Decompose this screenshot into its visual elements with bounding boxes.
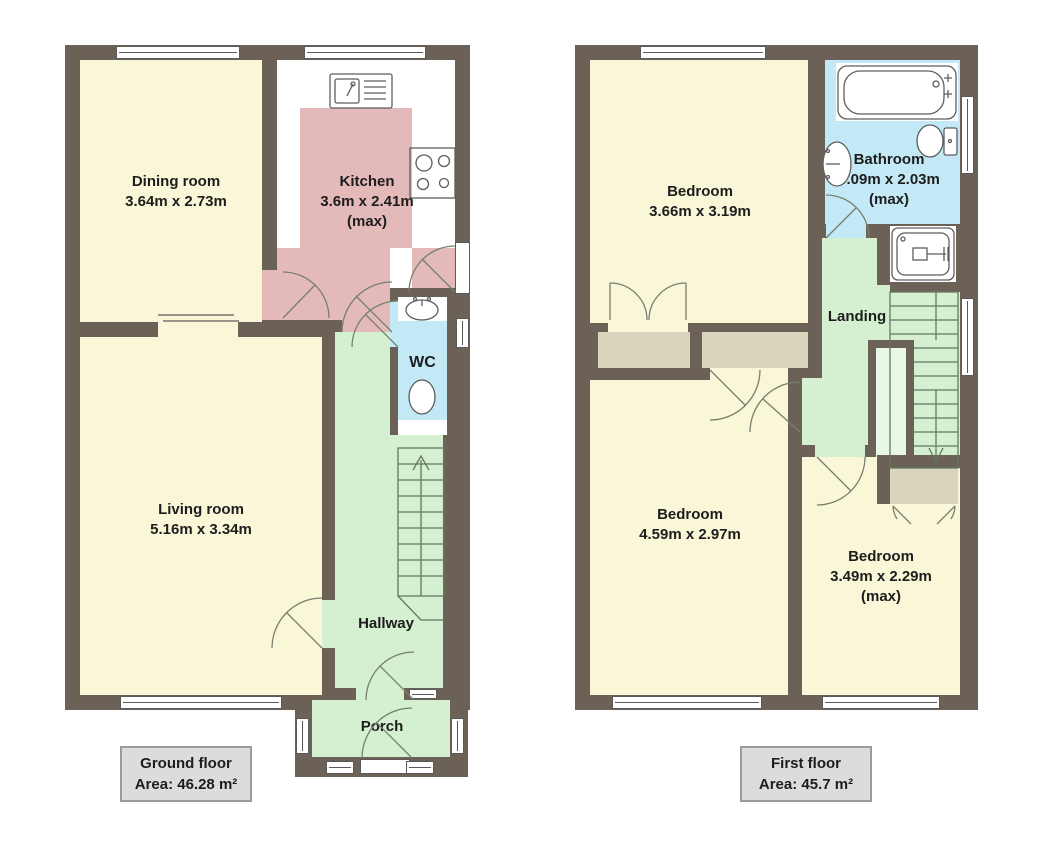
room-name: WC [397,352,448,373]
landing-bedroom2-doorway [802,378,822,445]
wardrobe-bedroom3-wall-left [877,468,890,504]
room-name: Dining room [86,172,266,192]
kitchen-label: Kitchen 3.6m x 2.41m (max) [288,172,446,231]
dining-kitchen-door-opening [262,270,277,320]
hallway-sidelight-window [409,689,437,699]
bedroom3-label: Bedroom 3.49m x 2.29m (max) [796,547,966,606]
room-name: Bedroom [796,547,966,567]
room-dims: 4.59m x 2.97m [600,525,780,545]
bedroom2-window [612,696,762,709]
wardrobe-bedroom3-wall [877,455,960,468]
room-dims: 3.66m x 3.19m [610,202,790,222]
bedroom1-window [640,46,766,59]
bedroom2-label: Bedroom 4.59m x 2.97m [600,505,780,545]
bathtub-zone [836,63,958,121]
shower-zone [890,226,956,282]
bedroom1-label: Bedroom 3.66m x 3.19m [610,182,790,222]
living-room-label: Living room 5.16m x 3.34m [101,500,301,540]
dining-living-opening [158,322,238,337]
kitchen-floor-right [412,248,455,288]
wardrobe-bedroom2 [702,332,808,368]
stairwell-void [876,348,906,460]
landing-label: Landing [815,307,899,327]
room-dims-qualifier: (max) [796,587,966,607]
wc-basin-counter [398,297,447,321]
first-floor-title-box: First floor Area: 45.7 m² [740,746,872,802]
wc-window [456,318,469,348]
porch-window-bottom-right [406,761,434,774]
room-name: Bedroom [600,505,780,525]
bedroom3-door-opening [815,445,865,457]
room-name: Bathroom [809,150,969,170]
room-dims: 3.49m x 2.29m [796,567,966,587]
room-dims: 5.16m x 3.34m [101,520,301,540]
dining-room-label: Dining room 3.64m x 2.73m [86,172,266,212]
ground-floor-title-box: Ground floor Area: 46.28 m² [120,746,252,802]
kitchen-back-door-opening [455,242,470,294]
hallway-label: Hallway [326,614,446,634]
wardrobe-bedroom1 [598,332,690,368]
room-name: Landing [815,307,899,327]
room-name: Living room [101,500,301,520]
bathroom-label: Bathroom 3.09m x 2.03m (max) [809,150,969,209]
kitchen-window [304,46,426,59]
wardrobe-bedroom2-opening [710,368,788,380]
room-dims: 3.09m x 2.03m [809,170,969,190]
floor-area: Area: 45.7 m² [750,774,862,795]
porch-label: Porch [322,717,442,737]
living-room-window [120,696,282,709]
hallway-floor-stairs [390,435,443,700]
bedroom3-window [822,696,940,709]
porch-front-door-opening [360,759,410,774]
wc-lower-ledge [398,420,447,435]
floorplan-canvas: Dining room 3.64m x 2.73m Kitchen 3.6m x… [0,0,1045,852]
room-dims: 3.64m x 2.73m [86,192,266,212]
stairs-window [961,298,974,376]
wc-label: WC [397,352,448,373]
kitchen-hallway-wall [277,320,342,332]
room-dims: 3.6m x 2.41m [288,192,446,212]
floor-title: First floor [750,753,862,774]
bathroom-door-opening [826,224,866,238]
dining-window [116,46,240,59]
porch-window-left [296,718,309,754]
hallway-porch-door-opening [356,688,404,700]
wc-door-opening [390,301,398,347]
porch-window-bottom-left [326,761,354,774]
room-dims-qualifier: (max) [288,212,446,232]
room-name: Bedroom [610,182,790,202]
room-dims-qualifier: (max) [809,190,969,210]
floor-area: Area: 46.28 m² [130,774,242,795]
room-name: Kitchen [288,172,446,192]
room-name: Hallway [326,614,446,634]
hallway-floor [335,332,390,700]
wardrobe-bedroom3 [890,468,958,504]
room-name: Porch [322,717,442,737]
floor-title: Ground floor [130,753,242,774]
porch-window-right [451,718,464,754]
